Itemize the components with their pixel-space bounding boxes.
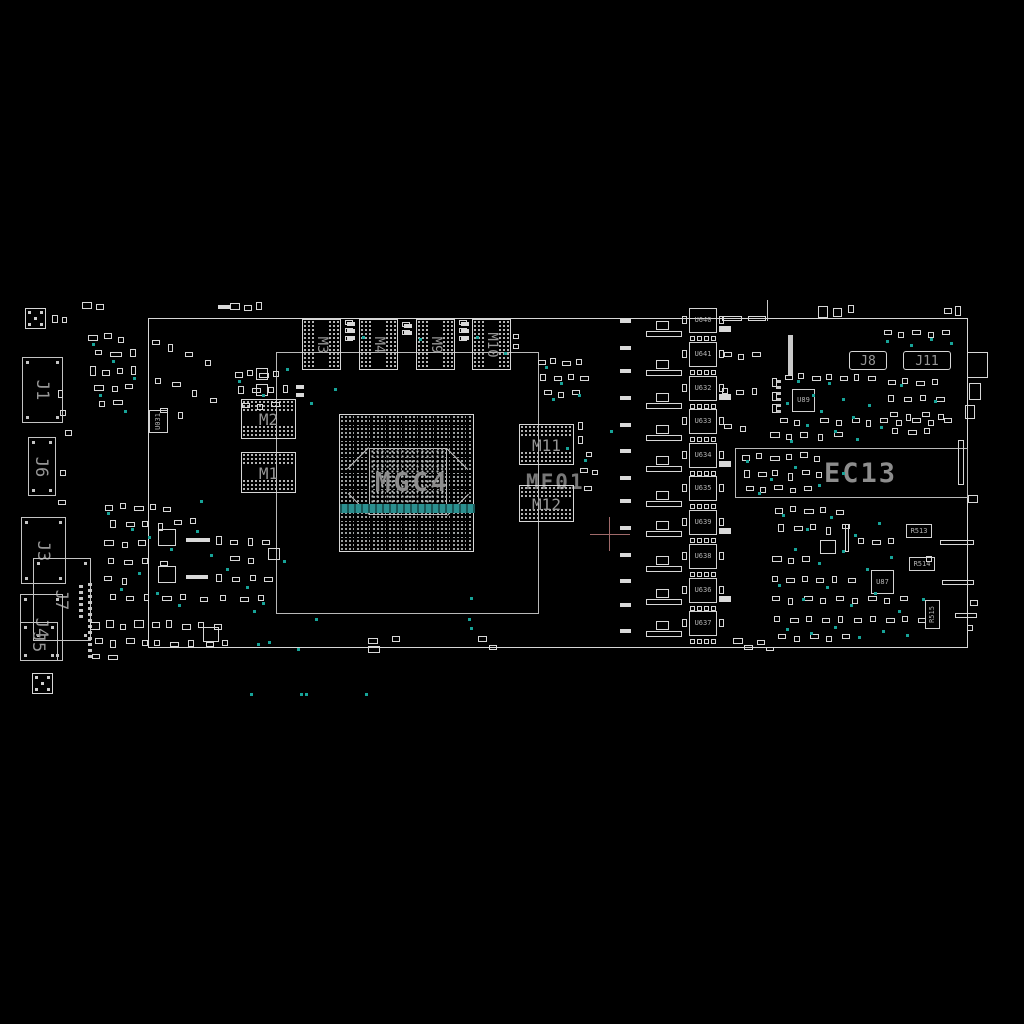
memory-chip-M4[interactable]: M4 — [359, 319, 398, 370]
chip-label: R515 — [929, 606, 936, 623]
inductor-box — [656, 456, 669, 465]
test-point — [148, 536, 151, 539]
component-outline — [918, 618, 926, 623]
power-stage-U632[interactable]: U632 — [689, 376, 717, 401]
component-pad — [461, 329, 469, 333]
inductor-box — [656, 321, 669, 330]
component-outline — [842, 634, 850, 639]
capacitor — [620, 449, 631, 453]
test-point — [250, 693, 253, 696]
component-outline — [920, 395, 926, 401]
memory-chip-M12[interactable]: M12 — [519, 485, 574, 522]
connector-J5[interactable]: J5 — [20, 622, 58, 661]
inductor-bar — [646, 331, 682, 337]
memory-chip-M11[interactable]: M11 — [519, 424, 574, 465]
component-outline — [188, 640, 194, 647]
component-outline — [940, 540, 974, 545]
chip-label: U031 — [155, 413, 162, 430]
component-outline — [816, 472, 822, 478]
power-stage-label: U640 — [695, 317, 712, 324]
component-outline — [110, 520, 116, 528]
component-outline — [778, 524, 784, 532]
component-outline — [967, 625, 973, 631]
gpu-teal-band — [340, 504, 475, 513]
component-outline — [240, 597, 249, 602]
board-line — [767, 300, 768, 321]
component-outline — [180, 594, 186, 600]
power-stage-label: U639 — [695, 519, 712, 526]
component-outline — [958, 440, 964, 485]
component-pad — [719, 461, 731, 467]
component-outline — [888, 380, 896, 385]
test-point — [334, 388, 337, 391]
test-point — [262, 602, 265, 605]
stage-pad — [682, 451, 687, 459]
component-outline — [166, 620, 172, 628]
component-outline — [758, 472, 767, 477]
memory-chip-M3[interactable]: M3 — [302, 319, 341, 370]
component-outline — [848, 578, 856, 583]
stage-pad — [711, 572, 716, 577]
component-outline — [746, 486, 754, 491]
chip-label: U87 — [876, 579, 889, 586]
test-point — [545, 366, 548, 369]
component-outline — [562, 361, 571, 366]
component-outline — [104, 576, 112, 581]
component-outline — [185, 352, 193, 357]
stage-pad — [711, 437, 716, 442]
component-outline — [108, 655, 118, 660]
component-outline — [722, 316, 742, 321]
test-point — [92, 343, 95, 346]
connector-pin-dot — [84, 634, 87, 637]
connector-pin-dot — [84, 562, 87, 565]
component-outline — [778, 634, 786, 639]
component-outline — [884, 330, 892, 335]
component-outline — [92, 654, 100, 659]
test-point — [828, 382, 831, 385]
test-point — [834, 430, 837, 433]
component-outline — [578, 422, 583, 430]
test-point — [786, 402, 789, 405]
inductor-bar — [646, 403, 682, 409]
power-stage-U640[interactable]: U640 — [689, 308, 717, 333]
component-outline — [220, 595, 226, 601]
hole-dot — [41, 682, 44, 685]
component-outline — [788, 473, 793, 481]
boardview-canvas[interactable]: EC13 MF01 MGC4 M2M1M3M4M9M10M11M12 J1J6J… — [0, 0, 1024, 1024]
component-outline — [392, 636, 400, 642]
component-outline — [848, 305, 854, 313]
chip-U87[interactable]: U87 — [871, 570, 894, 594]
component-outline — [780, 418, 788, 423]
component-pad — [218, 305, 230, 309]
stage-pad — [704, 336, 709, 341]
component-outline — [95, 350, 102, 355]
chip-U89[interactable]: U89 — [792, 389, 815, 412]
test-point — [786, 628, 789, 631]
component-outline — [94, 385, 104, 391]
gpu-corner-mark — [347, 447, 369, 469]
stage-pad — [704, 538, 709, 543]
component-outline — [182, 624, 191, 630]
connector-label: J1 — [34, 370, 52, 410]
test-point — [268, 641, 271, 644]
gpu-chip-MGC4[interactable]: MGC4 — [339, 414, 474, 552]
component-outline — [152, 622, 160, 628]
component-outline — [65, 430, 72, 436]
stage-pad — [690, 639, 695, 644]
stage-pad — [682, 484, 687, 492]
component-outline — [478, 636, 487, 642]
component-outline — [840, 376, 848, 381]
component-outline — [142, 521, 148, 527]
capacitor — [620, 603, 631, 607]
component-outline — [748, 316, 766, 321]
ec13-label: EC13 — [824, 458, 897, 489]
test-point — [419, 338, 422, 341]
hole-dot — [40, 323, 43, 326]
gpu-corner-mark — [446, 448, 468, 470]
component-outline — [125, 384, 133, 389]
pad-strip — [79, 585, 83, 618]
connector-pin-dot — [49, 489, 52, 492]
component-outline — [870, 616, 876, 622]
connector-J1[interactable]: J1 — [22, 357, 63, 423]
test-point — [584, 459, 587, 462]
component-outline — [826, 636, 832, 642]
capacitor — [620, 346, 631, 350]
component-outline — [99, 401, 105, 407]
memory-label: M9 — [428, 323, 444, 367]
component-outline — [900, 596, 908, 601]
component-outline — [969, 383, 981, 400]
component-outline — [52, 315, 58, 323]
component-outline — [908, 430, 917, 435]
mounting-hole — [25, 308, 46, 329]
component-outline — [733, 638, 743, 644]
component-outline — [368, 638, 378, 644]
test-point — [362, 336, 365, 339]
component-outline — [126, 522, 135, 527]
power-stage-U636[interactable]: U636 — [689, 578, 717, 603]
test-point — [124, 410, 127, 413]
inductor-bar — [646, 370, 682, 376]
component-outline — [130, 349, 136, 357]
chip-U031[interactable]: U031 — [149, 410, 168, 433]
component-outline — [838, 616, 843, 623]
component-outline — [580, 468, 588, 473]
component-outline — [744, 645, 753, 650]
test-point — [890, 556, 893, 559]
test-point — [852, 416, 855, 419]
component-outline — [820, 507, 826, 513]
power-stage-U634[interactable]: U634 — [689, 443, 717, 468]
test-point — [880, 426, 883, 429]
component-outline — [155, 378, 161, 384]
component-outline — [540, 374, 546, 381]
test-point — [878, 522, 881, 525]
test-point — [886, 340, 889, 343]
component-outline — [816, 578, 824, 583]
component-outline — [142, 640, 148, 646]
test-point — [468, 618, 471, 621]
hole-dot — [34, 317, 37, 320]
stage-pad — [719, 619, 724, 627]
component-outline — [932, 379, 938, 385]
component-outline — [368, 646, 380, 653]
test-point — [856, 438, 859, 441]
component-outline — [264, 577, 273, 582]
stage-pad — [704, 437, 709, 442]
component-outline — [162, 596, 172, 601]
cursor-crosshair — [609, 517, 610, 551]
test-point — [882, 630, 885, 633]
test-point — [900, 384, 903, 387]
component-outline — [144, 594, 149, 601]
capacitor — [620, 369, 631, 373]
hole-dot — [28, 311, 31, 314]
board-line — [788, 335, 793, 375]
component-outline — [804, 596, 813, 601]
component-outline — [858, 538, 864, 544]
component-outline — [216, 536, 222, 545]
component-outline — [134, 620, 144, 628]
test-point — [830, 516, 833, 519]
component-outline — [586, 452, 592, 457]
component-outline — [108, 558, 114, 564]
inductor-bar — [646, 466, 682, 472]
component-outline — [836, 596, 844, 601]
component-outline — [772, 596, 780, 601]
component-outline — [82, 302, 92, 309]
component-outline — [58, 390, 63, 398]
power-stage-U633[interactable]: U633 — [689, 409, 717, 434]
component-pad — [186, 575, 208, 579]
test-point — [476, 336, 479, 339]
test-point — [246, 586, 249, 589]
inductor-box — [656, 491, 669, 500]
component-outline — [168, 344, 173, 352]
test-point — [922, 598, 925, 601]
component-outline — [138, 540, 146, 546]
inductor-box — [656, 393, 669, 402]
component-outline — [888, 538, 894, 544]
test-point — [133, 377, 136, 380]
component-pad — [347, 336, 355, 340]
connector-label: J11 — [904, 354, 950, 368]
test-point — [842, 398, 845, 401]
test-point — [560, 382, 563, 385]
component-outline — [740, 426, 746, 432]
connector-pin-dot — [25, 521, 28, 524]
component-pad — [719, 326, 731, 332]
component-outline — [955, 613, 977, 618]
component-outline — [244, 305, 252, 311]
component-outline — [955, 306, 961, 316]
memory-label: M10 — [484, 323, 500, 367]
component-outline — [124, 560, 133, 565]
component-outline — [154, 640, 160, 646]
component-outline — [268, 387, 274, 393]
test-point — [778, 584, 781, 587]
component-outline — [756, 453, 762, 459]
component-outline — [912, 330, 921, 335]
component-outline — [802, 470, 810, 475]
component-outline — [550, 358, 556, 364]
component-outline — [210, 398, 217, 403]
stage-pad — [690, 572, 695, 577]
component-outline — [942, 580, 974, 585]
test-point — [806, 424, 809, 427]
component-outline — [836, 510, 844, 515]
memory-chip-M10[interactable]: M10 — [472, 319, 511, 370]
component-outline — [131, 366, 136, 375]
capacitor — [620, 396, 631, 400]
component-pad — [719, 394, 731, 400]
stage-pad — [690, 336, 695, 341]
power-stage-label: U636 — [695, 587, 712, 594]
test-point — [810, 632, 813, 635]
component-outline — [142, 558, 148, 564]
test-point — [906, 634, 909, 637]
component-outline — [786, 578, 795, 583]
connector-pin-dot — [26, 361, 29, 364]
component-outline — [774, 485, 783, 490]
component-outline — [826, 527, 831, 535]
inductor-bar — [646, 435, 682, 441]
component-outline — [122, 542, 128, 548]
component-outline — [902, 616, 908, 622]
test-point — [820, 410, 823, 413]
stage-pad — [719, 518, 724, 526]
component-outline — [818, 434, 823, 441]
memory-chip-M9[interactable]: M9 — [416, 319, 455, 370]
stage-pad — [697, 572, 702, 577]
stage-pad — [719, 552, 724, 560]
component-outline — [216, 574, 222, 582]
stage-pad — [682, 518, 687, 526]
connector-pin-dot — [25, 577, 28, 580]
component-pad — [404, 331, 412, 335]
test-point — [196, 530, 199, 533]
test-point — [868, 404, 871, 407]
mounting-hole — [32, 673, 53, 694]
component-outline — [170, 642, 179, 647]
connector-label: J5 — [30, 622, 48, 662]
memory-chip-M1[interactable]: M1 — [241, 452, 296, 493]
component-outline — [790, 618, 799, 623]
test-point — [156, 592, 159, 595]
test-point — [842, 472, 845, 475]
component-outline — [794, 526, 803, 531]
inductor-bar — [646, 501, 682, 507]
component-outline — [820, 598, 826, 604]
test-point — [257, 643, 260, 646]
component-outline — [238, 386, 244, 394]
connector-pin-dot — [32, 441, 35, 444]
component-outline — [802, 576, 808, 582]
component-outline — [110, 594, 116, 600]
test-point — [746, 460, 749, 463]
component-outline — [804, 509, 814, 514]
component-outline — [126, 596, 134, 601]
connector-pin-dot — [59, 521, 62, 524]
component-outline — [513, 344, 519, 349]
power-stage-U638[interactable]: U638 — [689, 544, 717, 569]
connector-pin-dot — [49, 441, 52, 444]
component-outline — [794, 636, 800, 642]
component-outline — [544, 390, 552, 395]
capacitor — [620, 553, 631, 557]
stage-pad — [704, 572, 709, 577]
power-stage-U641[interactable]: U641 — [689, 342, 717, 367]
capacitor — [620, 629, 631, 633]
component-outline — [810, 524, 816, 530]
component-outline — [578, 436, 583, 444]
connector-J8[interactable]: J8 — [849, 351, 887, 370]
component-outline — [489, 645, 497, 650]
component-outline — [250, 575, 256, 581]
component-outline — [513, 334, 519, 339]
power-stage-U639[interactable]: U639 — [689, 510, 717, 535]
component-outline — [826, 374, 832, 380]
connector-pin-dot — [56, 361, 59, 364]
test-point — [238, 380, 241, 383]
stage-pad — [682, 552, 687, 560]
test-point — [818, 484, 821, 487]
memory-label: M1 — [242, 464, 295, 482]
component-outline — [820, 540, 836, 554]
power-stage-U635[interactable]: U635 — [689, 476, 717, 501]
test-point — [758, 492, 761, 495]
component-outline — [248, 558, 254, 564]
stage-pad — [704, 370, 709, 375]
component-outline — [104, 540, 114, 546]
stage-pad — [690, 504, 695, 509]
component-outline — [554, 376, 562, 381]
connector-J11[interactable]: J11 — [903, 351, 951, 370]
component-outline — [592, 470, 598, 475]
chip-R515[interactable]: R515 — [925, 600, 940, 629]
component-outline — [160, 408, 168, 413]
test-point — [226, 568, 229, 571]
test-point — [297, 648, 300, 651]
component-outline — [814, 456, 820, 462]
component-outline — [866, 420, 871, 427]
component-outline — [772, 378, 777, 387]
chip-R513[interactable]: R513 — [906, 524, 932, 538]
component-outline — [906, 414, 911, 421]
stage-pad — [682, 417, 687, 425]
inductor-box — [656, 556, 669, 565]
test-point — [794, 466, 797, 469]
component-outline — [232, 577, 240, 582]
memory-label: M4 — [371, 323, 387, 367]
test-point — [365, 693, 368, 696]
component-outline — [967, 352, 988, 378]
power-stage-label: U638 — [695, 553, 712, 560]
power-stage-U637[interactable]: U637 — [689, 611, 717, 636]
connector-J6[interactable]: J6 — [28, 437, 56, 496]
inductor-bar — [646, 631, 682, 637]
hole-dot — [35, 688, 38, 691]
component-outline — [898, 332, 904, 338]
component-outline — [752, 388, 757, 395]
component-outline — [110, 352, 122, 357]
component-outline — [273, 371, 279, 377]
component-outline — [944, 308, 952, 314]
